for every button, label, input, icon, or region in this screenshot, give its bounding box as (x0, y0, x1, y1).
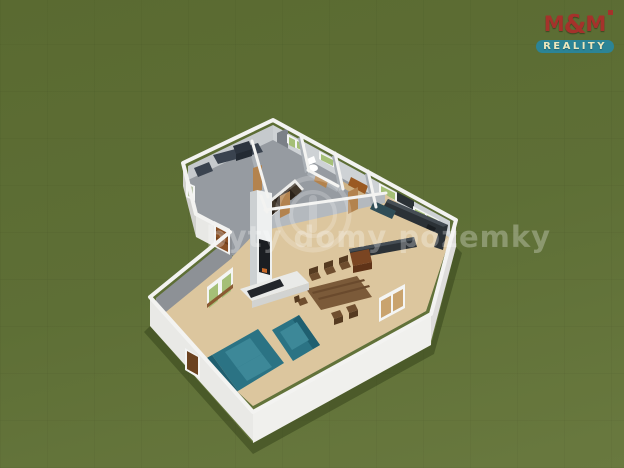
logo-brand: M&M (544, 12, 607, 38)
logo-m2: M (585, 12, 606, 36)
chimney-side (250, 190, 257, 291)
front-window-mullion (391, 294, 393, 314)
logo-mark (608, 10, 613, 15)
logo-ampersand: & (564, 10, 587, 40)
logo-tagline: REALITY (536, 40, 614, 53)
floorplan-3d-render (0, 0, 624, 468)
render-viewport: byty domy pozemky M&M REALITY (0, 0, 624, 468)
agency-logo: M&M REALITY (536, 12, 614, 53)
logo-m1: M (544, 12, 565, 36)
